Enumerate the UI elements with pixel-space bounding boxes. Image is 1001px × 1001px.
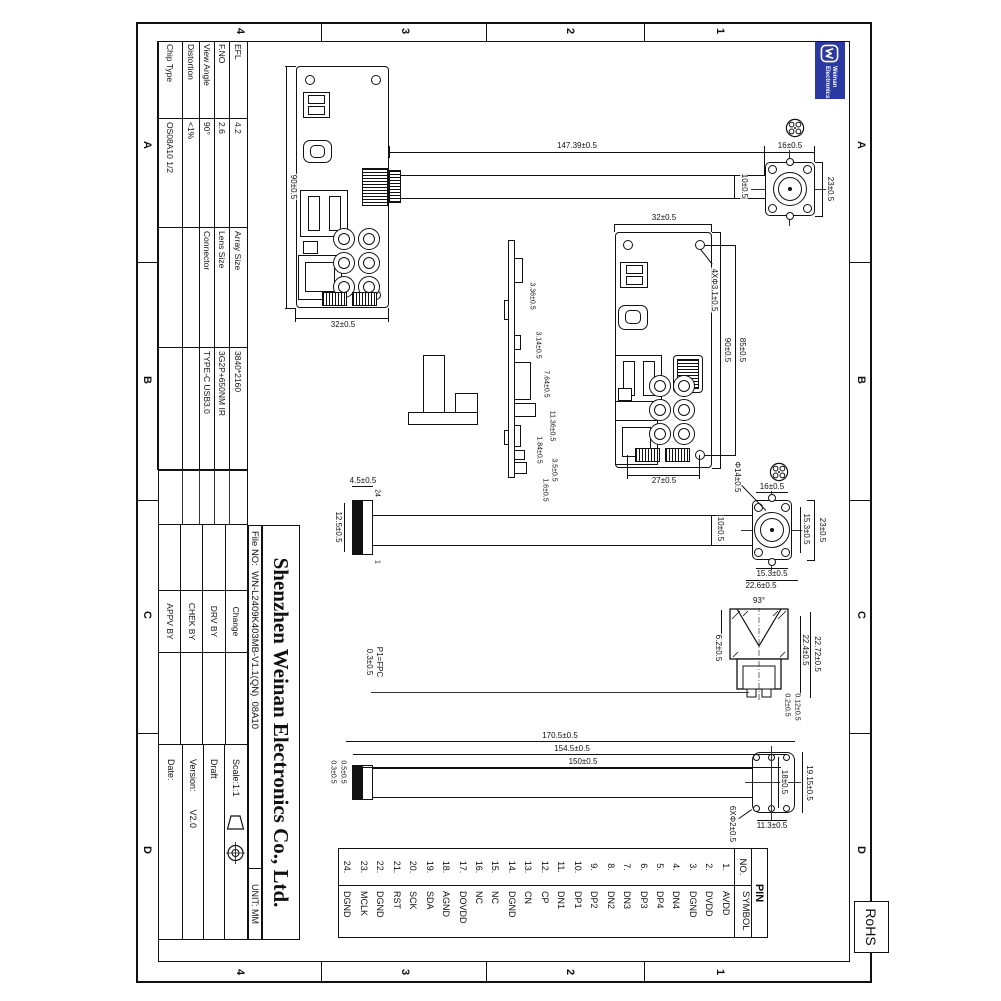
pin-symbol: DGND [342,886,352,937]
shape: RoHS [864,908,880,945]
dim-label: 3.14±0.5 [535,330,542,359]
lv [850,262,872,263]
lv [756,492,788,493]
ci [786,158,794,166]
version-value: V2.0 [188,792,198,829]
dim-label: 7.64±0.5 [543,369,550,398]
pin-no: 13. [520,849,536,886]
dim-label: 3.5±0.5 [551,457,558,482]
pin-no: 24. [339,849,355,886]
cable2-edge [373,515,752,516]
spec-value: 2.6 [214,119,229,228]
pin-symbol: DP2 [589,886,599,937]
dim-label: 23±0.5 [818,517,826,543]
zone-letter: C [855,611,867,619]
pin-symbol: CN [523,886,533,937]
zone-number: 3 [399,969,411,975]
zone-letter: D [141,846,153,854]
pin-no: 10. [569,849,585,886]
pin-symbol: DP4 [655,886,665,937]
b [504,300,509,320]
lens-axis-icon [780,118,805,138]
lv [850,500,872,501]
dot [788,187,792,191]
rohs-badge: RoHS [854,901,889,953]
[object [228,816,244,829]
approval-signature [203,653,225,745]
pin-row: 9.DP2 [586,849,602,937]
dim-label: 16±0.5 [777,142,803,150]
pin-no: 6. [635,849,651,886]
dim-label: 15.3±0.5 [755,570,788,578]
ci [695,450,705,460]
scale-label: Scale:1:1 [231,745,241,797]
dim-label: 150±0.5 [568,758,599,766]
pin-no: 2. [701,849,717,886]
ci [363,257,375,269]
b [626,265,643,274]
dim-label: 32±0.5 [330,321,356,329]
file-no: File NO: WN-L2409K403MB-V1.1(QN) 08A10 [249,526,261,868]
[object [747,689,756,697]
pin-row: 15.NC [487,849,503,937]
draft-label: Draft [209,745,219,779]
pcb1-df40-connector [362,168,388,206]
dim-label: 11.3±0.5 [756,822,789,830]
b [514,362,531,400]
ci [654,404,666,416]
ffc-contacts [352,500,362,555]
ci [654,380,666,392]
file-no-row: File NO: WN-L2409K403MB-V1.1(QN) 08A10 U… [248,525,262,940]
approval-label: CHEK BY [180,591,202,653]
b [308,106,325,115]
lh [486,962,487,983]
pin-no: 12. [537,849,553,886]
spec-label [182,228,199,348]
zone-letter: B [141,376,153,384]
lh [800,507,801,553]
spec-label: Array Size [229,228,247,348]
lh [711,224,712,232]
pin-symbol: DN4 [671,886,681,937]
fpc-extension-line [371,692,749,693]
pin-row: 21.RST [388,849,404,937]
approval-label: APPV BY [158,591,180,653]
pin-table: PIN NO. SYMBOL 1.AVDD2.DVDD3.DGND4.DN45.… [338,848,768,938]
lv [352,486,373,487]
pin-row: 17.DOVDD [454,849,470,937]
lh [814,500,815,560]
lh [699,455,700,479]
unit-label: UNIT: MM [249,868,261,939]
b [455,393,478,413]
pin-row: 7.DN3 [619,849,635,937]
pin-row: 18.AGND [438,849,454,937]
pin-row: 1.AVDD [718,849,734,937]
lens-section-view [723,608,790,700]
dim-label: 22.6±0.5 [744,582,777,590]
lh [344,503,345,552]
pin-row: 23.MCLK [356,849,372,937]
lv [136,500,158,501]
pin-row: 24.DGND [339,849,355,937]
pin-symbol: AVDD [721,886,731,937]
ci [768,165,777,174]
ci [754,548,763,557]
dim-label: 6.2±0.5 [714,634,722,663]
pin-col-symbol: SYMBOL [735,886,751,937]
dim-label: 1.6±0.5 [542,477,549,502]
lv [136,262,158,263]
pin-rows: 1.AVDD2.DVDD3.DGND4.DN45.DP46.DP37.DN38.… [339,849,734,937]
dim-label: Φ14±0.5 [733,461,741,494]
lv [705,455,736,456]
pin-row: 14.DGND [504,849,520,937]
dim-label: 12.5±0.5 [334,510,342,543]
lh [199,470,200,525]
spec-label: Lens Size [214,228,229,348]
ci [363,233,375,245]
b [308,196,320,231]
lh [644,22,645,41]
b [625,310,641,324]
pin-no: 9. [586,849,602,886]
lh [720,232,721,468]
dim-label: 147.39±0.5 [556,142,598,150]
b [514,462,527,474]
dim-label: P1=FPC [375,646,383,678]
spec-value: 3840*2160 [229,348,247,470]
approval-label: Change [225,591,247,653]
zone-number: 2 [564,969,576,975]
pin-no: 7. [619,849,635,886]
[object [785,118,805,138]
lh [627,455,628,479]
cable3-edge [373,797,752,798]
[object [794,127,796,129]
cable1-edge [401,175,765,176]
lh [321,22,322,41]
pin-number-label: 1 [374,559,381,565]
lh [644,962,645,983]
lh [734,175,735,198]
approval-blank [225,525,247,591]
pin-no: 1. [718,849,734,886]
cable3-stiffener [362,765,373,800]
dim-label: 10±0.5 [716,516,724,542]
b [423,355,445,413]
lh [802,752,803,813]
lv [807,560,815,561]
lv [353,754,787,755]
pin-row: 10.DP1 [569,849,585,937]
scale-version-block: Scale:1:1 Draft Version: V2.0 Date: [158,745,248,940]
spec-label: F.NO [214,41,229,119]
pin-no: 11. [553,849,569,886]
zone-number: 3 [399,28,411,34]
b [504,430,509,445]
lv [615,224,712,225]
b [635,448,660,462]
lh [814,146,815,162]
zone-letter: A [141,141,153,149]
[object [769,462,789,482]
pin-no: 21. [388,849,404,886]
ci [338,257,350,269]
dim-label: 0.2±0.5 [784,692,791,717]
ci [781,548,790,557]
ci [803,204,812,213]
ffc-stiffener [362,500,373,555]
approval-blank [180,525,202,591]
spec-value: 3G2P+650NM IR [214,348,229,470]
b [626,276,643,285]
ci [768,494,776,502]
zone-letter: C [141,611,153,619]
cable3-contacts [352,765,362,800]
spec-label: EFL [229,41,247,119]
lv [807,500,815,501]
spec-label [157,228,182,348]
lh [229,470,230,525]
pin-symbol: DN1 [556,886,566,937]
version-label: Version: [188,745,198,792]
spec-value [157,348,182,470]
dim-label: 19.15±0.5 [805,764,813,802]
[object [227,813,246,871]
pin-symbol: DN3 [622,886,632,937]
spec-value: TYPE-C USB3.0 [199,348,214,470]
b [514,450,525,460]
zone-number: 1 [714,28,726,34]
approval-signature [225,653,247,745]
[object [778,471,780,473]
weinan-logo: Weinan Electronics [815,42,845,99]
title-block-spacer [158,470,248,525]
spec-label: Distortion [182,41,199,119]
logo-text-2: Electronics [823,66,831,98]
cable1-edge [401,198,765,199]
ci [654,428,666,440]
trow: Draft [203,745,224,939]
dim-line [389,152,815,153]
approval-table: ChangeDRV BYCHEK BYAPPV BY [158,525,248,745]
dim-label: 90±0.5 [289,174,297,200]
lv [705,245,736,246]
dim-label: 32±0.5 [651,214,677,222]
trow: Date: [160,745,182,939]
bracket-part [408,412,478,425]
dim-label: 0.3±0.5 [330,759,337,784]
lv [136,733,158,734]
pin-symbol: DGND [375,886,385,937]
lh [614,224,615,232]
zone-number: 4 [234,28,246,34]
approval-blank [158,525,180,591]
lv [359,767,781,768]
dim-label: 4XΦ3.1±0.5 [710,268,718,313]
dim-label: 154.5±0.5 [553,745,591,753]
pin-symbol: SCK [408,886,418,937]
cable2-edge [373,545,752,546]
b [514,335,521,350]
lv [712,468,721,469]
pin-no: 16. [471,849,487,886]
lv [745,782,801,783]
pin-row: 6.DP3 [635,849,651,937]
spec-value: 90° [199,119,214,228]
ci [678,404,690,416]
lh [321,962,322,983]
lv [815,216,823,217]
pin-no: 15. [487,849,503,886]
dim-label: 0.3±0.5 [365,648,373,677]
logo-text-1: Weinan [830,66,838,98]
screenshot-root: A B C D A B C D 1 2 3 4 1 2 3 4 Weinan E… [0,0,1001,1001]
shape: Weinan Electronics [823,66,838,98]
pin-row: 22.DGND [372,849,388,937]
spec-value: OS08A10 1/2 [157,119,182,228]
dim-label: 27±0.5 [651,477,677,485]
pin-no: 14. [504,849,520,886]
lh [822,162,823,216]
third-angle-projection-icon [227,813,246,871]
b [618,388,632,401]
cable1-plug [389,170,401,203]
pin-symbol: DVDD [704,886,714,937]
ci [803,165,812,174]
lh [735,245,736,455]
approval-label: DRV BY [203,591,225,653]
pin-row: 2.DVDD [701,849,717,937]
lh [295,308,296,322]
pin-symbol: NC [474,886,484,937]
spec-label: Chip Type [157,41,182,119]
dim-label: 0.5±0.5 [340,759,347,784]
lh [286,66,287,308]
lh [388,308,389,322]
dim-label: 170.5±0.5 [541,732,579,740]
[object [728,608,790,700]
pin-no: 17. [454,849,470,886]
spec-value [182,348,199,470]
zone-number: 4 [234,969,246,975]
dim-label: 4.5±0.5 [349,477,378,485]
ci [786,212,794,220]
pin-symbol: CP [540,886,550,937]
spec-label: View Angle [199,41,214,119]
dim-label: 90±0.5 [723,337,731,363]
pin-no: 20. [405,849,421,886]
dot [770,528,774,532]
b [322,292,347,306]
pin-symbol: DP1 [573,886,583,937]
[object [762,689,771,697]
pin-table-title: PIN [751,849,767,937]
pin-row: 3.DGND [685,849,701,937]
pin-symbol: AGND [441,886,451,937]
b [329,196,341,231]
ci [768,204,777,213]
b [308,95,325,104]
ci [305,75,315,85]
dim-label: 22.4±0.5 [801,633,809,666]
lh [778,757,779,808]
pin-symbol: SDA [425,886,435,937]
drawing-sheet: A B C D A B C D 1 2 3 4 1 2 3 4 Weinan E… [0,0,1001,1001]
b [514,403,536,417]
dim-label: 11.36±0.5 [549,410,556,443]
pin-col-no: NO. [735,849,751,886]
pin-table-header: NO. SYMBOL [734,849,751,937]
pin-no: 4. [668,849,684,886]
dim-label: 23±0.5 [826,176,834,202]
pin-symbol: RST [392,886,402,937]
zone-letter: D [855,846,867,854]
dim-label: 85±0.5 [738,337,746,363]
pin-row: 16.NC [471,849,487,937]
pin-row: 19.SDA [421,849,437,937]
pin-no: 8. [602,849,618,886]
lh [214,470,215,525]
dim-label: 3.36±0.5 [529,281,536,310]
pin-no: 22. [372,849,388,886]
dim-label: 1.84±0.5 [536,435,543,464]
pin-no: 18. [438,849,454,886]
pin-row: 4.DN4 [668,849,684,937]
ci [371,75,381,85]
dim-label: 15.3±0.5 [802,512,810,545]
dim-label: 93° [752,597,766,605]
b [514,258,523,283]
b [352,292,377,306]
b [665,448,690,462]
lv [850,733,872,734]
b [514,425,521,447]
dim-label: 22.72±0.5 [813,635,821,673]
pin-number-label: 24 [374,488,381,498]
zone-letter: B [855,376,867,384]
[object [821,44,840,63]
spec-label: Connector [199,228,214,348]
dim-label: 16±0.5 [759,483,785,491]
pin-row: 12.CP [537,849,553,937]
spec-table-1: EFL4.2F.NO2.6View Angle90°Distortion<1%C… [158,41,248,228]
pin-row: 11.DN1 [553,849,569,937]
[object [827,49,834,59]
zone-number: 2 [564,28,576,34]
lv [296,318,389,319]
date-label: Date: [166,745,176,781]
dim-label: 0.12±0.5 [794,692,801,721]
zone-letter: A [855,141,867,149]
pin-symbol: NC [490,886,500,937]
pin-no: 19. [421,849,437,886]
approval-blank [203,525,225,591]
pin-row: 13.CN [520,849,536,937]
pin-symbol: DGND [507,886,517,937]
lh [182,470,183,525]
approval-signature [158,653,180,745]
pin-no: 3. [685,849,701,886]
dim-label: 18±0.5 [780,769,788,795]
spec-table-2: Array Size3840*2160Lens Size3G2P+650NM I… [158,228,248,470]
company-name-box: Shenzhen Weinan Electronics Co., Ltd. [262,525,300,940]
zone-number: 1 [714,969,726,975]
spec-value: 4.2 [229,119,247,228]
ci [768,558,776,566]
